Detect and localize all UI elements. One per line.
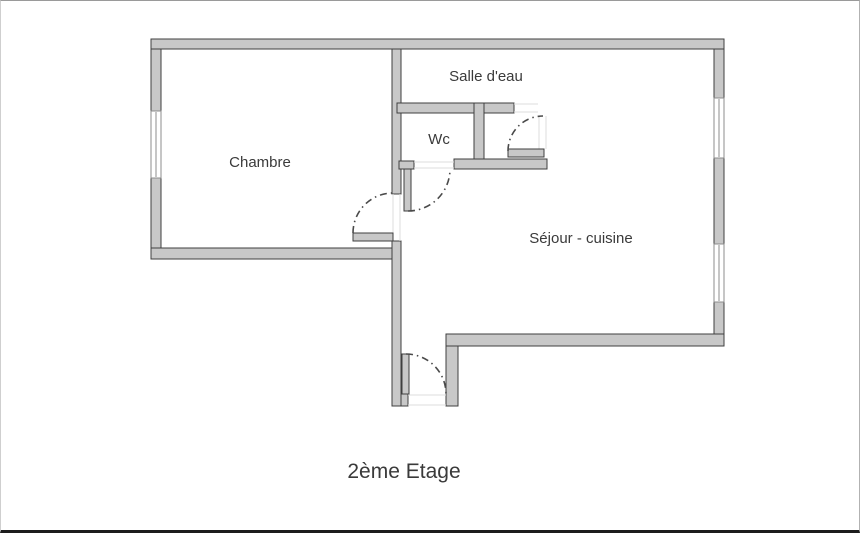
- floorplan-canvas: Chambre Salle d'eau Wc Séjour - cuisine …: [1, 1, 860, 533]
- threshold-chambre-door: [393, 194, 400, 241]
- door-arc-salledeau: [508, 116, 543, 151]
- floorplan-image: Chambre Salle d'eau Wc Séjour - cuisine …: [0, 0, 860, 533]
- door-leaf-entrance: [402, 354, 409, 394]
- wall-right-middle: [714, 158, 724, 244]
- wall-top-outer: [151, 39, 724, 49]
- windows: [151, 98, 724, 302]
- wall-central-lower: [392, 241, 401, 406]
- wall-wc-door-jamb: [399, 161, 414, 169]
- door-leaf-chambre: [353, 233, 393, 241]
- wall-left-upper: [151, 49, 161, 111]
- wall-right-upper: [714, 49, 724, 98]
- outer-walls: [151, 39, 724, 406]
- door-arc-chambre: [353, 193, 393, 233]
- door-arc-wc: [408, 169, 450, 211]
- door-arc-entrance: [406, 354, 446, 394]
- window-left: [151, 111, 161, 178]
- wall-salledeau-south: [397, 103, 514, 113]
- wall-left-lower: [151, 178, 161, 259]
- threshold-entrance-door: [408, 395, 446, 405]
- room-label-wc: Wc: [428, 131, 450, 148]
- wall-entrance-right: [446, 346, 458, 406]
- wall-central-upper: [392, 49, 401, 194]
- window-right-top: [714, 98, 724, 158]
- door-leaf-wc: [404, 169, 411, 211]
- wall-vestibule-bottom: [454, 159, 547, 169]
- wall-sejour-bottom: [446, 334, 724, 346]
- threshold-wc-door: [414, 162, 454, 168]
- room-label-salle-deau: Salle d'eau: [449, 68, 523, 85]
- room-label-sejour-cuisine: Séjour - cuisine: [529, 230, 632, 247]
- room-labels: Chambre Salle d'eau Wc Séjour - cuisine: [229, 68, 633, 247]
- threshold-salledeau-opening: [514, 104, 538, 112]
- threshold-salledeau-door: [539, 116, 546, 149]
- room-label-chambre: Chambre: [229, 154, 291, 171]
- interior-walls: [392, 49, 547, 406]
- wall-chambre-bottom: [151, 248, 401, 259]
- door-leaf-salledeau: [508, 149, 544, 157]
- window-right-bottom: [714, 244, 724, 302]
- floor-title: 2ème Etage: [347, 460, 460, 483]
